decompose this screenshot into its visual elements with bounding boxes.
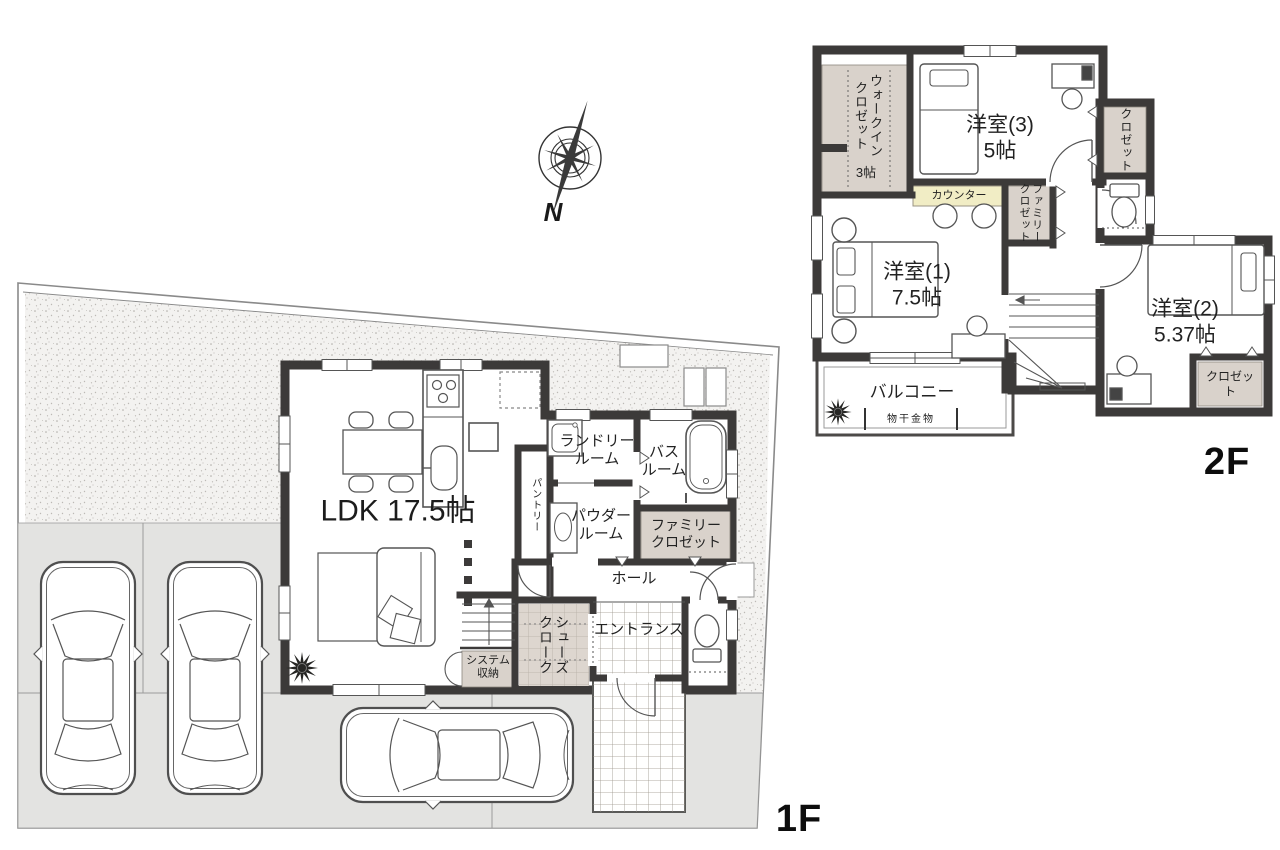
system-storage-fill [462,651,512,687]
bathtub [686,421,726,503]
washing-machine [548,420,582,456]
shoes-cloak-floor [519,604,589,686]
floor-plan-drawing [0,0,1280,850]
kitchen-cabinet [469,423,498,451]
car-3 [341,701,573,809]
building-2f [812,45,1276,435]
family-closet-2f-fill [1008,186,1052,240]
compass-rose [539,99,601,216]
bed-room2 [1148,245,1264,315]
kitchen-island [422,370,463,507]
sofa-and-rug [318,548,435,646]
closet-upper-fill [1104,107,1146,174]
entrance-tiles [597,603,681,675]
wic-wall-stub [813,144,847,152]
balcony-2f [817,360,1013,435]
counter-2f [913,186,1005,206]
car-1 [34,562,142,794]
walk-in-closet-fill [822,65,908,192]
bed-room3 [920,64,978,174]
closet-lower-fill [1198,362,1262,406]
car-2 [161,562,269,794]
family-closet-1f-fill [641,511,730,559]
floor-plan-page: LDK 17.5帖 ランドリー ルーム バス ルーム パウダー ルーム パントリ… [0,0,1280,850]
powder-sink [550,503,577,553]
